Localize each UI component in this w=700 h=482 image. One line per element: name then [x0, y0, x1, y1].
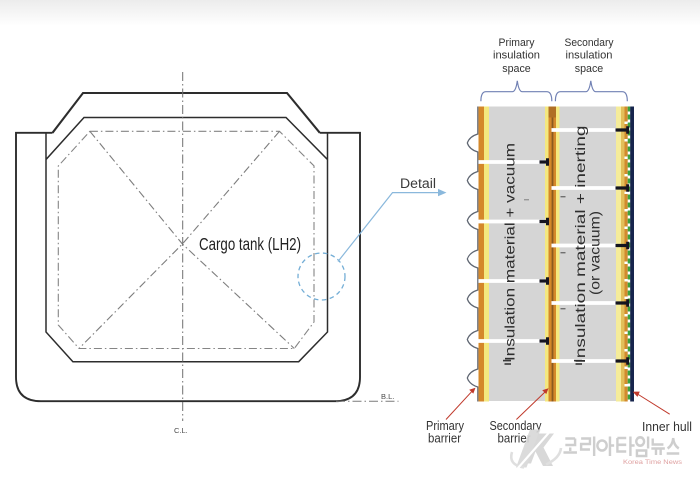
svg-text:space: space [575, 63, 604, 75]
svg-text:Cargo tank (LH2): Cargo tank (LH2) [199, 234, 301, 254]
svg-text:(or vacuum): (or vacuum) [587, 211, 603, 295]
svg-text:B.L.: B.L. [381, 392, 394, 401]
svg-text:barrier: barrier [428, 432, 461, 446]
svg-text:Secondary: Secondary [565, 37, 615, 49]
svg-text:Detail: Detail [400, 176, 436, 192]
svg-text:Primary: Primary [499, 37, 536, 49]
svg-text:insulation: insulation [566, 50, 613, 62]
svg-text:insulation: insulation [493, 50, 540, 62]
svg-text:Insulation material + vacuum: Insulation material + vacuum [502, 143, 518, 361]
svg-text:C.L.: C.L. [174, 426, 188, 435]
svg-text:Korea Time News: Korea Time News [623, 459, 683, 466]
svg-text:space: space [502, 63, 531, 75]
svg-text:Inner hull: Inner hull [642, 420, 692, 434]
